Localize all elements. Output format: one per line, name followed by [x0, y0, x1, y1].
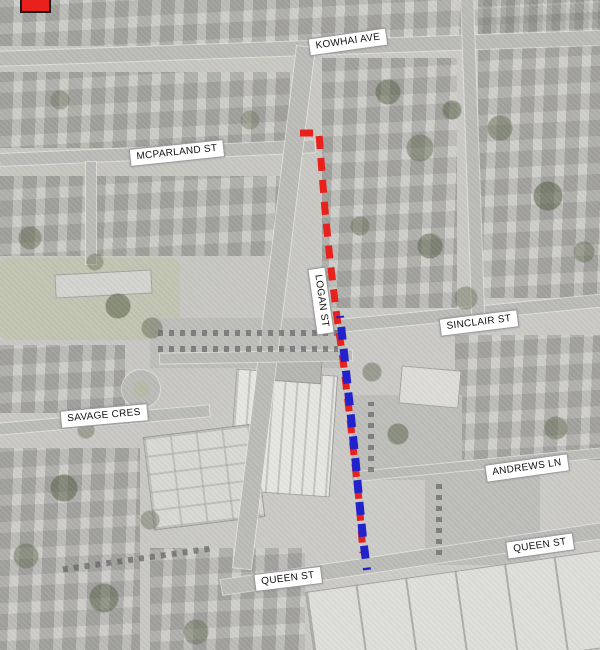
legend-red-marker	[20, 0, 51, 13]
aerial-map: KOWHAI AVE MCPARLAND ST LOGAN ST SINCLAI…	[0, 0, 600, 650]
route-red-dashed	[300, 133, 363, 553]
route-blue-dashed	[340, 316, 367, 570]
